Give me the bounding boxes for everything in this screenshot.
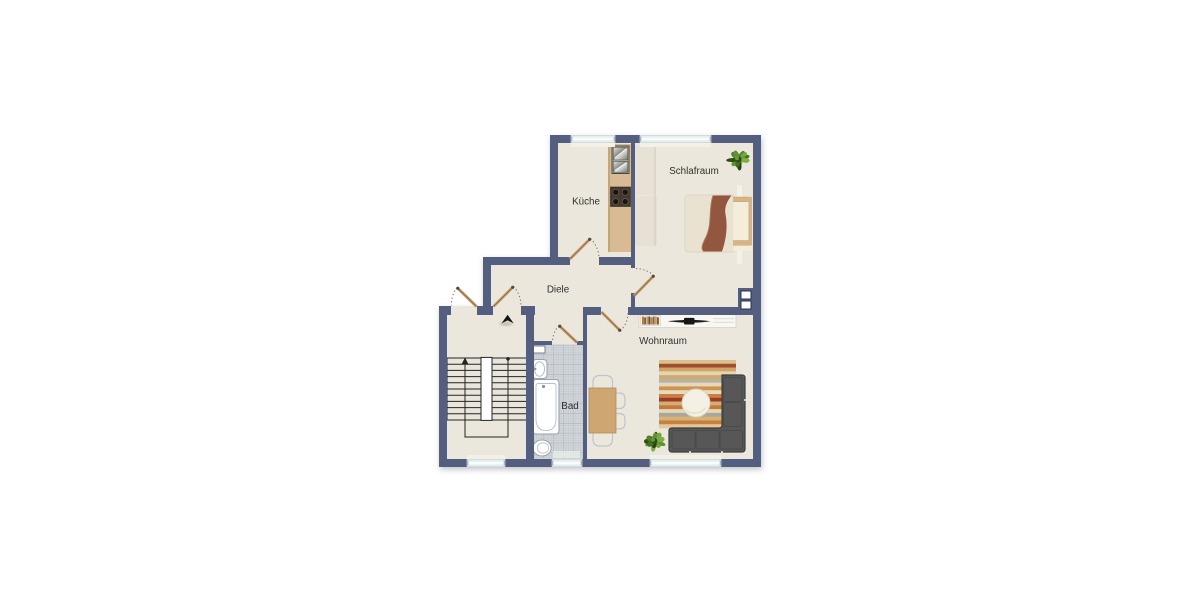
svg-text:Wohnraum: Wohnraum [639,336,687,347]
svg-text:Bad: Bad [561,401,578,412]
svg-text:Schlafraum: Schlafraum [669,166,719,177]
svg-text:Diele: Diele [547,285,570,296]
svg-text:Küche: Küche [572,197,600,208]
